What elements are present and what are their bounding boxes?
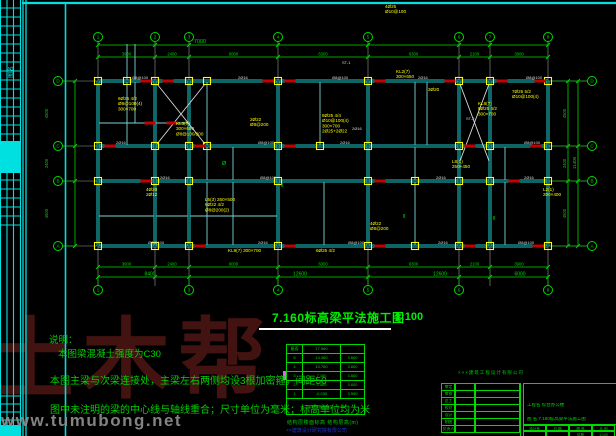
stirrup-mark — [375, 80, 386, 83]
dim-text: 2100 — [470, 52, 480, 57]
axis-bubble-label: 6 — [458, 288, 461, 293]
title-block-footer-value-cell — [546, 431, 569, 436]
note-line: 本图梁混凝土强度为C30 — [58, 346, 161, 360]
beam-label: Ø8@100 — [524, 140, 541, 145]
dim-text: 6000 — [229, 262, 239, 267]
adjacent-sheet-strip: 图名 — [1, 0, 21, 436]
title-block-role-label: 设计 — [442, 413, 455, 417]
rebar-annotation: 6Ø25 4/2 — [316, 248, 335, 253]
rebar-annotation: 2Ø12 — [146, 192, 158, 197]
drawing-name-label: 图 名 7.160标高梁平法施工图 — [527, 417, 586, 421]
beam-label: 2Ø16 — [116, 140, 127, 145]
dim-text: 11400 — [572, 156, 577, 169]
dim-text: 2400 — [44, 158, 49, 168]
stirrup-mark — [105, 145, 116, 148]
axis-bubble-label: 7 — [489, 35, 492, 40]
rebar-annotation: Ø8@200(2) — [205, 207, 230, 212]
green-glyph: ¢ — [280, 183, 283, 189]
axis-bubble-label: 6 — [458, 35, 461, 40]
rebar-annotation: Ø8@100/200 — [176, 131, 204, 136]
stirrup-mark — [533, 245, 544, 248]
dim-text: 3900 — [514, 262, 524, 267]
dim-text: 8400 — [144, 272, 155, 278]
rebar-annotation: 200×400 — [543, 192, 561, 197]
axis-bubble-label: D — [56, 79, 60, 84]
beam-label: 2Ø16 — [438, 240, 449, 245]
rebar-annotation: 250×450 — [452, 164, 470, 169]
floor-table-cell: 10.760 — [303, 363, 341, 372]
stirrup-mark — [445, 80, 456, 83]
dim-text: 6300 — [409, 262, 419, 267]
stirrup-mark — [285, 245, 296, 248]
title-underline — [259, 328, 391, 330]
title-block-footer-value-cell — [523, 431, 546, 436]
stirrup-mark — [375, 245, 386, 248]
floor-table-row: 23.5603.600 — [287, 381, 365, 390]
footer-col-header: 日 期 — [547, 427, 568, 431]
project-name-label: 工程名 综合办公楼 — [527, 403, 564, 407]
rebar-annotation: 300×700 — [478, 111, 496, 116]
floor-table-row: 410.7603.600 — [287, 363, 365, 372]
beam-label: Ø8@100 — [148, 240, 165, 245]
floor-table-cell — [341, 345, 365, 354]
dim-text: 4500 — [44, 108, 49, 118]
rebar-annotation: 300×650 — [396, 74, 414, 79]
axis-bubble-label: C — [590, 144, 594, 149]
floor-table-cell: 3.600 — [341, 372, 365, 381]
dim-text: 4500 — [44, 208, 49, 218]
beam-label: 2Ø16 — [418, 75, 429, 80]
dim-text: 12600 — [293, 272, 307, 278]
rebar-annotation: Ø10@100(4) — [512, 94, 539, 99]
rebar-annotation: Ø8@200 — [250, 122, 269, 127]
drawing-scale: 1:100 — [395, 311, 423, 323]
rebar-annotation: 2Ø25+2Ø22 — [322, 129, 348, 134]
axis-bubble-label: 2 — [154, 35, 157, 40]
beam-label: Ø8@100 — [132, 75, 149, 80]
dim-text: 6300 — [409, 52, 419, 57]
stirrup-mark — [465, 245, 476, 248]
dim-text: 3900 — [514, 52, 524, 57]
watermark-site-url: www.tumubong.net — [1, 411, 182, 431]
dim-text: 7000 — [194, 39, 206, 45]
axis-bubble-label: D — [590, 79, 594, 84]
beam-label: 2Ø16 — [238, 75, 249, 80]
axis-bubble-label: 1 — [97, 35, 100, 40]
floor-table-cell: 1 — [287, 390, 303, 399]
floor-table-cell: -0.030 — [303, 390, 341, 399]
drawing-title: 7.160标高梁平法施工图 — [272, 309, 405, 326]
stirrup-mark — [285, 80, 296, 83]
title-block-role-label: 负责人 — [442, 427, 455, 431]
axis-bubble-label: 8 — [547, 288, 550, 293]
floor-table-cell: 2 — [287, 381, 303, 390]
footer-col-header: 设计号 — [524, 427, 545, 431]
floor-table-row: 屋面17.960 — [287, 345, 365, 354]
beam-label: 2Ø16 — [436, 175, 447, 180]
floor-table-cell: 4 — [287, 363, 303, 372]
title-block-cell — [455, 425, 475, 433]
stirrup-mark — [141, 180, 152, 183]
footer-col-header: 图 号 — [570, 427, 591, 431]
rebar-annotation: 300×700 — [118, 106, 136, 111]
beam-label: Ø8@100 — [260, 175, 277, 180]
floor-table-cell: 屋面 — [287, 345, 303, 354]
floor-table-cell: 3 — [287, 372, 303, 381]
title-block-divider — [520, 383, 521, 436]
white-labels: Ø8@1002Ø16Ø8@1002Ø16Ø8@1002Ø16Ø8@1002Ø16… — [116, 60, 543, 245]
stirrup-mark — [465, 145, 476, 148]
green-glyph: ¢ — [492, 216, 495, 222]
stirrup-mark — [263, 80, 274, 83]
floor-table-cell: 17.960 — [303, 345, 341, 354]
footer-col-value: 结施 — [570, 433, 591, 436]
floor-table-footer: 上部结构嵌固部位：-0.030 — [287, 399, 365, 415]
title-block-role-label: 审核 — [442, 392, 455, 396]
footer-col-header: 比 例 — [593, 427, 614, 431]
dim-text: 4500 — [562, 108, 567, 118]
stirrup-mark — [285, 145, 296, 148]
floor-table-cell: 3.560 — [303, 381, 341, 390]
beam-label: Ø8@100 — [518, 240, 535, 245]
floor-table-cell: 7.160 — [303, 372, 341, 381]
dim-text: 6000 — [514, 272, 525, 278]
floor-table-cell: 5 — [287, 354, 303, 363]
dim-text: 2400 — [562, 158, 567, 168]
axis-bubble-label: 4 — [277, 288, 280, 293]
green-glyph: ¢ — [402, 214, 405, 220]
floor-elevation-table: 屋面17.960514.3603.600410.7603.60037.1603.… — [286, 344, 365, 415]
stirrup-mark — [145, 122, 156, 125]
strip-vertical-text: 图名 — [7, 66, 15, 78]
stirrup-mark — [497, 80, 508, 83]
stirrup-mark — [195, 145, 206, 148]
dim-text: 2400 — [167, 52, 177, 57]
beam-label: Ø8@100 — [526, 75, 543, 80]
rebar-annotation: Ø8@200 — [370, 226, 389, 231]
dim-text: 6300 — [318, 262, 328, 267]
floor-table-cell: 3.600 — [341, 354, 365, 363]
axis-bubble-label: A — [590, 244, 593, 249]
beam-label: Ø8@100 — [332, 75, 349, 80]
dim-text: 2400 — [167, 262, 177, 267]
cad-viewport: { "watermark": { "brand": "土木帮", "site":… — [0, 0, 616, 436]
beam-label: ST-1 — [342, 60, 351, 65]
title-block-cell — [475, 425, 520, 433]
dim-text: 3900 — [122, 262, 132, 267]
strip-filled-cell — [1, 141, 20, 173]
axis-bubble-label: 5 — [367, 35, 370, 40]
beam-label: 2Ø16 — [524, 175, 535, 180]
floor-table-caption: 结构层楼面标高 结构层高(m) — [287, 419, 358, 426]
beam-label: 2Ø16 — [160, 175, 171, 180]
dim-text: 2100 — [470, 262, 480, 267]
title-block-role-label: 制图 — [442, 420, 455, 424]
title-block-role-label: 审定 — [442, 385, 455, 389]
axis-bubble-label: 4 — [277, 35, 280, 40]
green-glyph: Ø — [222, 161, 227, 167]
title-block-role-label: 校对 — [442, 406, 455, 410]
axis-bubble-label: B — [590, 179, 593, 184]
dim-text: 6000 — [229, 52, 239, 57]
footer-col-value: 1:100 — [593, 433, 614, 436]
stirrup-mark — [195, 245, 206, 248]
stirrup-mark — [163, 80, 174, 83]
floor-table-cell: 3.600 — [341, 363, 365, 372]
beam-label: 2Ø16 — [352, 126, 363, 131]
axis-bubble-label: 3 — [188, 288, 191, 293]
beam-label: Ø8@100 — [258, 140, 275, 145]
floor-table-cell: 14.360 — [303, 354, 341, 363]
beam-label: ST-2 — [466, 116, 475, 121]
notes-heading: 说明： — [49, 332, 78, 346]
axis-bubble-label: A — [56, 244, 59, 249]
floor-table-row: 514.3603.600 — [287, 354, 365, 363]
axis-bubble-label: 8 — [547, 35, 550, 40]
floor-table-row: 37.1603.600 — [287, 372, 365, 381]
title-block-role-label: 总工 — [442, 399, 455, 403]
axis-bubble-label: 3 — [188, 35, 191, 40]
beam-label: Ø8@100 — [348, 240, 365, 245]
beam-label: 2Ø16 — [258, 240, 269, 245]
rebar-annotation: 3Ø20 — [428, 87, 440, 92]
floor-table-cell: 3.590 — [341, 390, 365, 399]
axis-bubble-label: 1 — [97, 288, 100, 293]
dim-text: 6300 — [318, 52, 328, 57]
axis-bubble-label: B — [56, 179, 59, 184]
axis-bubble-label: C — [56, 144, 60, 149]
floor-table-row: 1-0.0303.590 — [287, 390, 365, 399]
rebar-annotation: KL9(7) 300×700 — [228, 248, 262, 253]
floor-table-cell: 3.600 — [341, 381, 365, 390]
title-block: 审定审核总工校对设计制图负责人工程名 综合办公楼图 名 7.160标高梁平法施工… — [441, 368, 616, 436]
dim-text: 12600 — [433, 272, 447, 278]
stirrup-mark — [509, 180, 520, 183]
design-company-text: ××建筑设计研究院有限公司 — [286, 427, 347, 434]
floor-table-footer-cell: 上部结构嵌固部位：-0.030 — [287, 399, 365, 415]
axis-bubble-label: 5 — [367, 288, 370, 293]
rebar-annotation: Ø10@100 — [385, 9, 406, 14]
stirrup-mark — [375, 180, 386, 183]
dim-text: 4500 — [562, 208, 567, 218]
beam-label: 2Ø16 — [340, 140, 351, 145]
